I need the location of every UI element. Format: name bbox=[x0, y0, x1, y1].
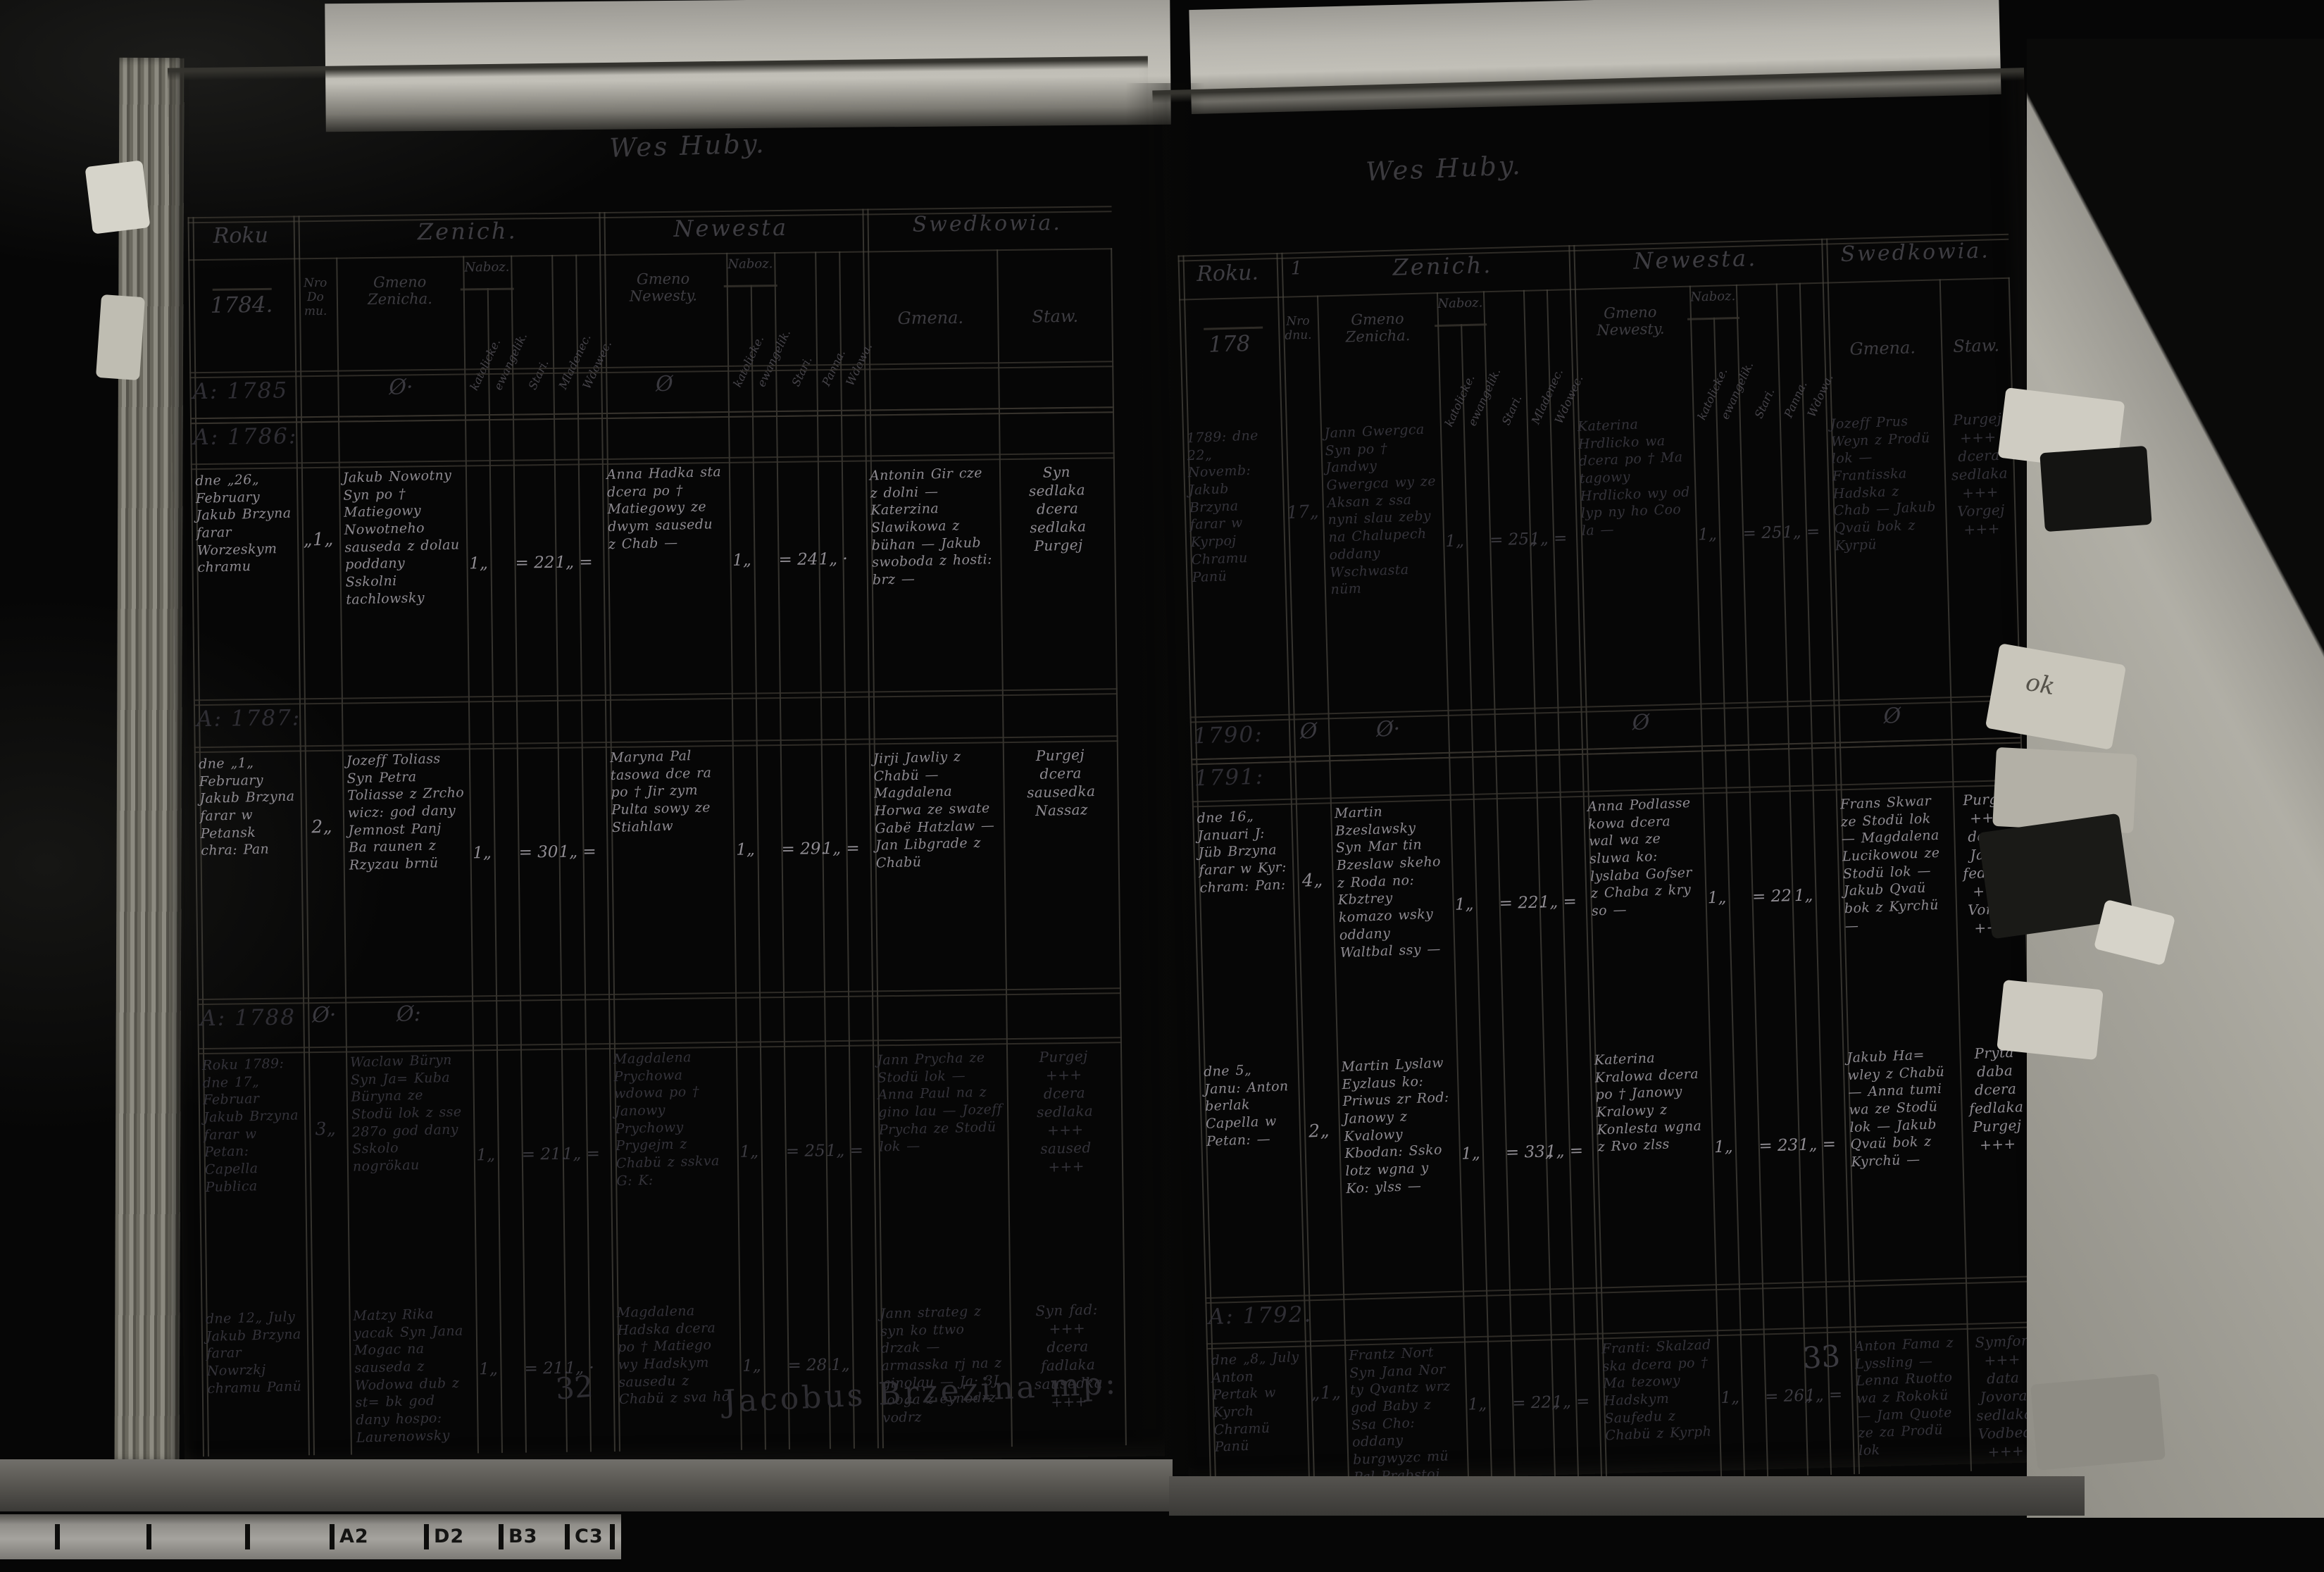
witness-status: Pryta daba dcera fedlaka Purgej +++ bbox=[1963, 1042, 2029, 1154]
header-naboz: Naboz. bbox=[1432, 295, 1488, 311]
bride-status-mark: 1„ · bbox=[818, 550, 842, 568]
witness-status: Purgej +++ dcera sedlaka +++ saused +++ bbox=[1010, 1046, 1120, 1177]
ruler-tick bbox=[245, 1524, 250, 1549]
year-band-label: A: 1788 bbox=[200, 1004, 296, 1031]
groom-status-mark: 1„ = bbox=[555, 553, 579, 571]
bride-name: Franti: Skalzad ska dcera po † Ma tezowy… bbox=[1601, 1336, 1716, 1445]
ruler-tick bbox=[55, 1524, 60, 1549]
row-rule bbox=[188, 248, 1112, 261]
ruler-label: A2 bbox=[339, 1526, 369, 1547]
torn-paper-hole bbox=[2039, 446, 2151, 532]
page-title: Wes Huby. bbox=[609, 128, 766, 163]
ruler-tick bbox=[499, 1524, 504, 1549]
witness-names: Jozeff Prus Weyn z Prodü lok — Frantissk… bbox=[1830, 411, 1942, 554]
bride-name: Katerina Hrdlicko wa dcera po † Ma tagow… bbox=[1577, 414, 1692, 540]
bride-age-value: = 24 bbox=[777, 550, 818, 569]
year-band-label: 1790: bbox=[1193, 722, 1263, 749]
bride-religion-mark: 1„ bbox=[1705, 889, 1729, 908]
bride-status-mark: 1„ bbox=[828, 1356, 852, 1374]
header-swedkowia: Swedkowia. bbox=[862, 210, 1111, 237]
witness-status: Purgej dcera sausedka Nassaz bbox=[1006, 744, 1116, 821]
groom-age-value: = 22. bbox=[1499, 894, 1539, 913]
bride-name: Magdalena Prychowa wdowa po † Janowy Pry… bbox=[613, 1048, 734, 1190]
year-band-label: A: 1785 bbox=[192, 378, 288, 405]
zero-mark: Ø· bbox=[337, 374, 464, 400]
bride-age-value: = 28. bbox=[787, 1356, 828, 1375]
header-roku: Roku. bbox=[1178, 260, 1277, 287]
header-gmeno-newesty: Gmeno Newesty. bbox=[1570, 303, 1690, 339]
row-rule bbox=[1179, 277, 2010, 301]
zero-mark: Ø· bbox=[1328, 716, 1449, 743]
witness-names: Anton Fama z Lyssling — Lenna Ruotto wa … bbox=[1854, 1334, 1966, 1460]
ruler-label: D2 bbox=[434, 1526, 464, 1547]
groom-religion-mark: 1„ bbox=[1459, 1144, 1483, 1164]
zero-mark: Ø: bbox=[345, 1001, 472, 1027]
header-staw: Staw. bbox=[1941, 335, 2012, 357]
groom-status-mark: 1„ = bbox=[1546, 1142, 1570, 1161]
bride-age-value: = 29. bbox=[781, 840, 822, 859]
header-newesta: Newesta. bbox=[1568, 243, 1822, 276]
ruler-tick bbox=[424, 1524, 429, 1549]
page-title: Wes Huby. bbox=[1366, 150, 1523, 187]
header-gmena: Gmena. bbox=[1824, 337, 1942, 359]
register-left-page: Wes Huby. RokuZenich.NewestaSwedkowia.17… bbox=[168, 56, 1165, 1468]
bride-name: Maryna Pal tasowa dce ra po † Jir zym Pu… bbox=[610, 747, 729, 837]
groom-name: Jann Gwergca Syn po † Jandwy Gwergca wy … bbox=[1324, 420, 1441, 599]
ruler-tick bbox=[565, 1524, 570, 1549]
entry-house-number: „1„ bbox=[297, 528, 340, 551]
column-rule bbox=[751, 285, 766, 1449]
header-roku: Roku bbox=[188, 223, 294, 249]
header-zenich: Zenich. bbox=[336, 216, 599, 247]
bride-status-mark: 1„ = bbox=[1782, 523, 1806, 542]
torn-paper-tab bbox=[1997, 980, 2104, 1060]
entry-house-number: 3„ bbox=[304, 1117, 347, 1141]
entry-date: Roku 1789: dne 17„ Februar Jakub Brzyna … bbox=[202, 1054, 301, 1196]
bride-religion-mark: 1„ bbox=[739, 1356, 763, 1375]
groom-status-mark: 1„ = bbox=[563, 1144, 587, 1163]
groom-religion-mark: 1„ bbox=[476, 1360, 500, 1378]
witness-names: Jakub Ha= wley z Chabü — Anna tumi wa ze… bbox=[1847, 1045, 1958, 1171]
house-number-note: 32 bbox=[554, 1369, 594, 1406]
groom-status-mark: 1„ = bbox=[1530, 530, 1554, 549]
groom-age-value: = 21. bbox=[522, 1145, 563, 1164]
bride-religion-mark: 1„ bbox=[730, 551, 754, 569]
register-table-left: RokuZenich.NewestaSwedkowia.1784.Nro Do … bbox=[187, 206, 1126, 1456]
groom-religion-mark: 1„ bbox=[466, 554, 490, 573]
entry-date: dne „1„ February Jakub Brzyna farar w Pe… bbox=[199, 754, 297, 861]
header-staw: Staw. bbox=[997, 306, 1113, 327]
bride-name: Anna Hadka sta dcera po † Matiegowy ze d… bbox=[606, 463, 725, 554]
bride-name: Katerina Kralowa dcera po † Janowy Kralo… bbox=[1594, 1047, 1708, 1156]
entry-date: 1789: dne 22„ Novemb: Jakub Brzyna farar… bbox=[1186, 426, 1281, 586]
entry-house-number: 4„ bbox=[1292, 868, 1332, 893]
year-band-label: A: 1787: bbox=[196, 705, 301, 732]
bride-name: Anna Podlasse kowa dcera wal wa ze sluwa… bbox=[1587, 794, 1702, 921]
bride-age-value: = 22 bbox=[1751, 887, 1792, 906]
groom-status-mark: 1„ = bbox=[1552, 1392, 1576, 1411]
groom-status-mark: 1„ = bbox=[1539, 893, 1563, 912]
page-number-note: 33 bbox=[1801, 1339, 1841, 1375]
bride-age-value: = 23 bbox=[1758, 1136, 1799, 1155]
row-rule bbox=[1205, 1280, 2036, 1304]
year-overline bbox=[213, 288, 272, 291]
groom-religion-mark: 1„ bbox=[470, 844, 494, 862]
groom-age-value: = 33„ bbox=[1506, 1142, 1547, 1161]
bride-religion-mark: 1„ bbox=[1712, 1137, 1736, 1156]
entry-house-number: 2„ bbox=[301, 815, 344, 839]
header-nro-domu: Nro Do mu. bbox=[294, 276, 337, 319]
header-naboz: Naboz. bbox=[458, 260, 515, 275]
entry-house-number: „1„ bbox=[1306, 1380, 1346, 1405]
witness-status: Syn sedlaka dcera sedlaka Purgej bbox=[1003, 461, 1112, 556]
header-gmena: Gmena. bbox=[863, 307, 997, 328]
zero-mark: Ø bbox=[601, 371, 727, 397]
header-gmeno-zenicha: Gmeno Zenicha. bbox=[337, 273, 464, 308]
ruler-tick bbox=[610, 1524, 615, 1549]
groom-status-mark: 1„ = bbox=[558, 843, 582, 861]
film-table-edge bbox=[0, 1459, 1173, 1511]
entry-date: dne „8„ July Anton Pertak w Kyrch Chramü… bbox=[1211, 1349, 1304, 1456]
witness-names: Frans Skwar ze Stodü lok — Magdalena Luc… bbox=[1839, 792, 1952, 935]
header-mark: 1 bbox=[1277, 258, 1317, 280]
ruler-tick bbox=[146, 1524, 151, 1549]
column-rule bbox=[1111, 248, 1127, 1445]
groom-name: Jakub Nowotny Syn po † Matiegowy Nowotne… bbox=[343, 466, 463, 609]
header-stari: Stari. bbox=[789, 354, 814, 389]
ruler-label: B3 bbox=[508, 1526, 537, 1547]
header-zenich: Zenich. bbox=[1316, 249, 1570, 282]
header-swedkowia: Swedkowia. bbox=[1821, 238, 2009, 268]
bride-religion-mark: 1„ bbox=[1718, 1388, 1742, 1407]
zero-mark: Ø bbox=[1289, 718, 1329, 744]
entry-date: dne 5„ Janu: Anton berlak Capella w Peta… bbox=[1204, 1060, 1296, 1150]
header-year: 178 bbox=[1180, 330, 1279, 358]
groom-name: Matzy Rika yacak Syn Jana Mogac na sause… bbox=[353, 1304, 473, 1447]
naboz-underline bbox=[461, 288, 514, 291]
calibration-ruler: A2 D2 B3 C3 bbox=[0, 1514, 621, 1559]
bride-age-value: = 26„ bbox=[1765, 1387, 1806, 1406]
bride-religion-mark: 1„ bbox=[1696, 525, 1720, 544]
ruler-tick bbox=[330, 1524, 335, 1549]
groom-age-value: = 22 bbox=[514, 554, 555, 573]
paper-tab bbox=[96, 294, 145, 380]
naboz-underline bbox=[724, 285, 777, 287]
groom-name: Martin Bzeslawsky Syn Mar tin Bzeslaw sk… bbox=[1334, 801, 1450, 961]
bride-age-value: = 25 bbox=[785, 1142, 826, 1161]
header-nro-domu: Nro dnu. bbox=[1278, 314, 1318, 343]
header-gmeno-zenicha: Gmeno Zenicha. bbox=[1318, 309, 1438, 346]
register-table-right: Roku.1Zenich.Newesta.Swedkowia.178Nro dn… bbox=[1177, 234, 2041, 1491]
bride-age-value: = 25 bbox=[1742, 523, 1783, 542]
year-band-label: A: 1792. bbox=[1208, 1302, 1312, 1330]
microfilm-background: Wes Huby. RokuZenich.NewestaSwedkowia.17… bbox=[0, 0, 2324, 1572]
witness-names: Jirji Jawliy z Chabü — Magdalena Horwa z… bbox=[873, 747, 1000, 872]
groom-name: Waclaw Büryn Syn Ja= Kuba Büryna ze Stod… bbox=[350, 1051, 470, 1175]
ruler-label: C3 bbox=[575, 1526, 604, 1547]
header-gmeno-newesty: Gmeno Newesty. bbox=[599, 270, 727, 305]
bride-name: Magdalena Hadska dcera po † Matiego wy H… bbox=[616, 1302, 736, 1409]
bride-religion-mark: 1„ bbox=[737, 1142, 761, 1161]
groom-age-value: = 30 bbox=[518, 843, 558, 862]
year-overline bbox=[1204, 327, 1263, 330]
groom-age-value: = 25„ bbox=[1489, 530, 1530, 549]
film-table-edge-right bbox=[1169, 1476, 2085, 1516]
year-band-label: 1791: bbox=[1194, 764, 1264, 792]
year-band-label: A: 1786: bbox=[193, 423, 297, 450]
header-stari: Stari. bbox=[1752, 386, 1778, 420]
witness-names: Jann Prycha ze Stodü lok — Anna Paul na … bbox=[877, 1049, 1004, 1156]
entry-house-number: 17„ bbox=[1282, 500, 1323, 525]
column-rule bbox=[1483, 291, 1516, 1483]
row-rule bbox=[1205, 1275, 2036, 1299]
entry-date: dne „26„ February Jakub Brzyna farar Wor… bbox=[195, 470, 294, 578]
groom-religion-mark: 1„ bbox=[1443, 532, 1467, 551]
bride-religion-mark: 1„ bbox=[733, 841, 757, 859]
torn-paper-tab bbox=[2030, 1373, 2166, 1470]
column-rule bbox=[487, 288, 503, 1453]
entry-date: dne 12„ July Jakub Brzyna farar Nowrzkj … bbox=[206, 1308, 304, 1397]
groom-religion-mark: 1„ bbox=[474, 1146, 498, 1164]
bride-status-mark: 1„ = bbox=[1798, 1135, 1822, 1154]
groom-name: Jozeff Toliass Syn Petra Toliasse z Zrch… bbox=[346, 749, 466, 874]
zero-mark: Ø bbox=[1581, 709, 1701, 736]
bride-status-mark: 1„ = bbox=[826, 1142, 850, 1160]
bride-status-mark: 1„ = bbox=[822, 840, 846, 858]
zero-mark: Ø· bbox=[303, 1003, 345, 1028]
header-naboz: Naboz. bbox=[1685, 289, 1741, 305]
groom-age-value: = 22„ bbox=[1512, 1393, 1553, 1412]
bride-status-mark: 1„ bbox=[1792, 886, 1816, 905]
entry-house-number: 2„ bbox=[1299, 1118, 1339, 1143]
witness-names: Antonin Gir cze z dolni — Katerzina Slaw… bbox=[870, 464, 997, 589]
header-newesta: Newesta bbox=[599, 213, 863, 244]
row-rule bbox=[1191, 742, 2022, 766]
column-rule bbox=[1736, 285, 1768, 1476]
groom-religion-mark: 1„ bbox=[1466, 1395, 1489, 1414]
header-stari: Stari. bbox=[1499, 393, 1525, 428]
groom-name: Martin Lyslaw Eyzlaus ko: Priwus zr Rod:… bbox=[1341, 1054, 1456, 1198]
entry-date: dne 16„ Januari J: Jüb Brzyna farar w Ky… bbox=[1197, 806, 1289, 897]
register-right-page: Wes Huby. Roku.1Zenich.Newesta.Swedkowia… bbox=[1152, 68, 2060, 1485]
header-year: 1784. bbox=[189, 292, 294, 318]
zero-mark: Ø bbox=[1833, 702, 1951, 730]
header-stari: Stari. bbox=[525, 358, 551, 392]
header-naboz: Naboz. bbox=[722, 256, 778, 272]
groom-name: Frantz Nort Syn Jana Nor ty Qvantz wrz g… bbox=[1349, 1343, 1464, 1487]
groom-religion-mark: 1„ bbox=[1452, 895, 1476, 914]
bride-status-mark: 1„ = bbox=[1805, 1386, 1829, 1405]
paper-tab bbox=[85, 160, 150, 234]
